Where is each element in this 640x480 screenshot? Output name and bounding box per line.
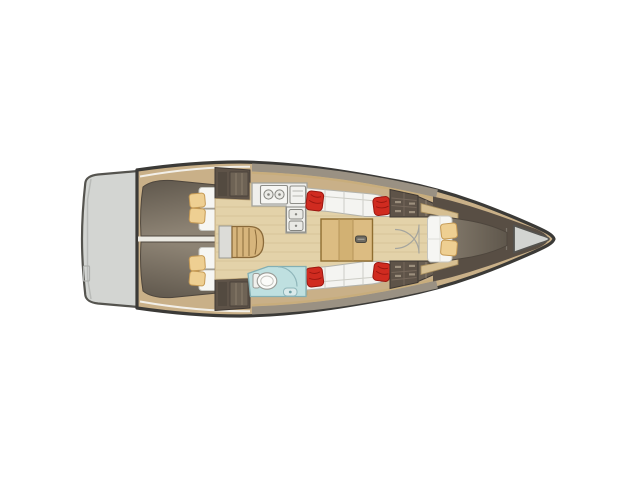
- red-cushion: [372, 262, 391, 282]
- tan-cushion: [189, 271, 206, 286]
- red-cushion: [305, 191, 324, 212]
- sink-drain: [295, 225, 297, 227]
- drain-dot: [289, 291, 292, 294]
- swim-platform: Stern swim platform / transom: [82, 171, 138, 307]
- drawer-handle: [395, 201, 401, 203]
- toilet-bowl: [257, 273, 277, 289]
- tan-cushion: [440, 240, 457, 256]
- tan-cushion: [189, 255, 205, 271]
- aft-cabin-divider: [138, 237, 217, 242]
- yacht-floorplan: Stern swim platform / transom Aft double…: [0, 0, 640, 480]
- sink-drain: [295, 213, 297, 215]
- worktop-lid: [290, 186, 306, 204]
- red-cushion: [305, 267, 324, 288]
- locker-louvre-bottom: [230, 282, 248, 306]
- table-center-leaf: [339, 220, 353, 261]
- engine-box: [219, 226, 232, 258]
- drawer-handle: [395, 210, 401, 212]
- locker-panel-bottom: [218, 282, 227, 306]
- drawer-handle: [395, 266, 401, 268]
- aft-cabin-starboard: Aft double cabin (starboard): [141, 242, 217, 298]
- drawer-handle: [395, 275, 401, 277]
- tan-cushion: [189, 208, 205, 224]
- burner-dot: [278, 193, 281, 196]
- locker-louvre-top: [230, 172, 248, 196]
- yacht-floorplan-canvas: Stern swim platform / transom Aft double…: [0, 0, 640, 480]
- drawer-handle: [409, 265, 415, 267]
- drawer-handle: [409, 273, 415, 275]
- drawer-handle: [409, 203, 415, 205]
- red-cushion: [372, 196, 391, 216]
- aft-cabins: Aft double cabin (port) Aft double cabin…: [138, 180, 217, 297]
- tan-cushion: [440, 223, 457, 240]
- swim-platform-deck: [82, 171, 138, 307]
- saloon-table: Folding saloon table: [321, 219, 373, 261]
- locker-panel-top: [218, 172, 227, 196]
- burner-dot: [267, 193, 270, 196]
- tan-cushion: [189, 193, 206, 208]
- drawer-handle: [409, 211, 415, 213]
- head-compartment: Head with toilet and shower: [248, 267, 306, 297]
- aft-cabin-port: Aft double cabin (port): [141, 180, 217, 236]
- companionway: Companionway steps: [219, 226, 264, 258]
